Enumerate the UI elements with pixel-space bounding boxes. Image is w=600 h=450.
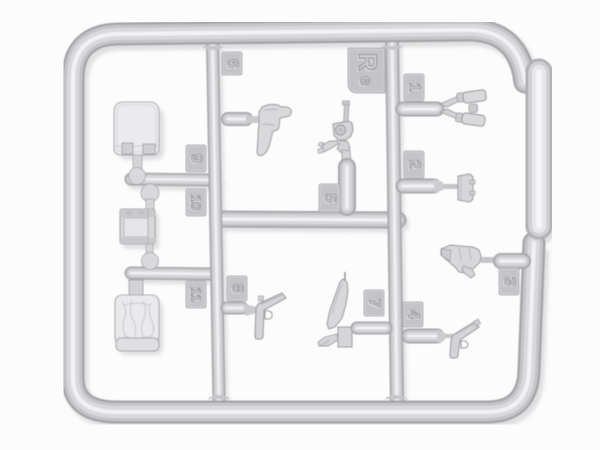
- svg-text:4: 4: [405, 310, 422, 319]
- svg-text:2: 2: [406, 160, 423, 169]
- svg-text:3: 3: [501, 277, 518, 286]
- svg-text:8: 8: [229, 284, 246, 293]
- svg-text:e: e: [357, 76, 376, 85]
- svg-text:6: 6: [224, 59, 241, 68]
- svg-text:9: 9: [188, 154, 205, 163]
- svg-text:1: 1: [406, 83, 423, 92]
- svg-text:5: 5: [321, 194, 338, 203]
- svg-text:7: 7: [366, 299, 383, 308]
- svg-text:R: R: [353, 53, 381, 71]
- svg-text:11: 11: [188, 287, 204, 302]
- svg-text:10: 10: [188, 195, 204, 211]
